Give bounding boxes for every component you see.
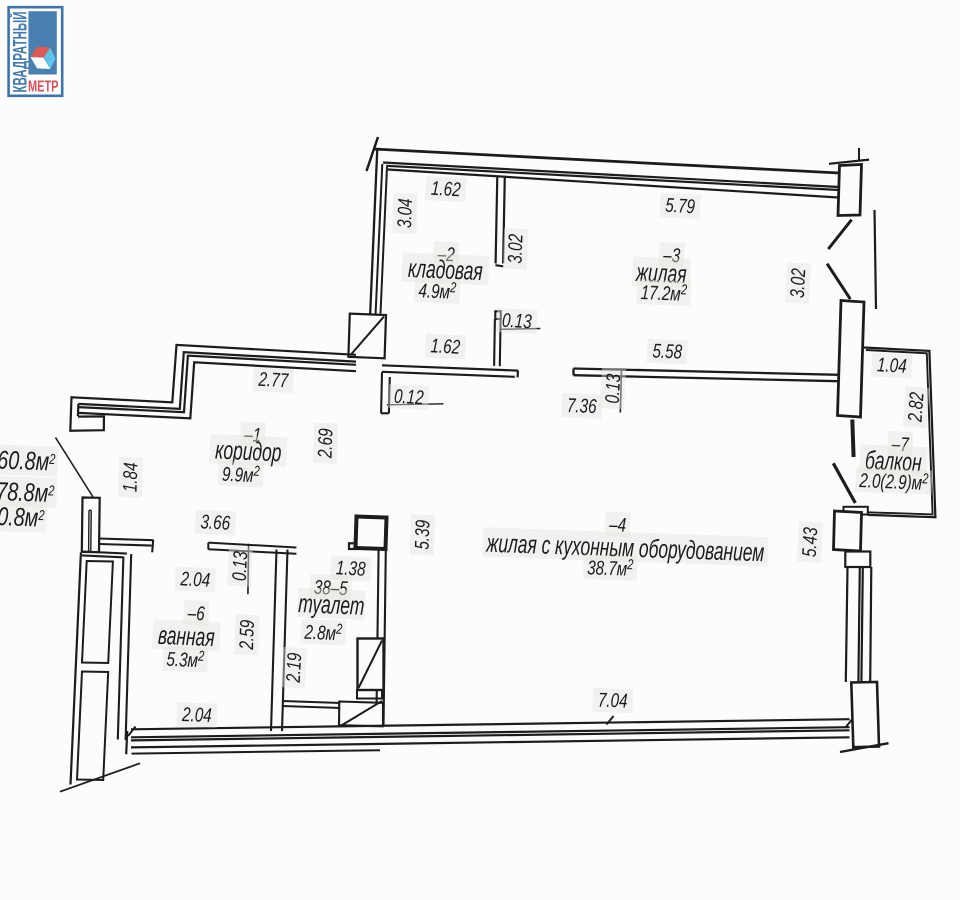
svg-text:2.04: 2.04: [181, 703, 212, 727]
svg-text:17.2м2: 17.2м2: [640, 279, 687, 306]
svg-text:МЕТР: МЕТР: [28, 79, 59, 96]
svg-text:0.13: 0.13: [601, 373, 625, 404]
svg-text:0.13: 0.13: [502, 309, 533, 333]
svg-text:2.69: 2.69: [313, 428, 337, 459]
svg-text:0.13: 0.13: [228, 551, 252, 582]
svg-text:туалет: туалет: [298, 589, 365, 621]
svg-text:1.62: 1.62: [430, 334, 461, 358]
svg-text:7.36: 7.36: [567, 394, 598, 418]
svg-text:3.04: 3.04: [393, 198, 417, 228]
svg-text:2.0(2.9)м2: 2.0(2.9)м2: [858, 467, 929, 495]
svg-text:60.8м2: 60.8м2: [0, 445, 56, 476]
svg-text:3.66: 3.66: [200, 510, 231, 534]
svg-text:3.02: 3.02: [503, 233, 527, 263]
svg-text:5.58: 5.58: [652, 339, 683, 363]
svg-text:3.02: 3.02: [786, 268, 810, 299]
svg-text:2.19: 2.19: [282, 652, 306, 684]
svg-text:2.82: 2.82: [903, 391, 928, 423]
svg-text:0.12: 0.12: [394, 385, 425, 409]
svg-text:1.84: 1.84: [118, 462, 142, 492]
svg-text:5.39: 5.39: [410, 519, 434, 549]
svg-text:5.79: 5.79: [665, 194, 696, 218]
svg-text:2.04: 2.04: [179, 567, 211, 591]
svg-text:1.62: 1.62: [431, 177, 462, 201]
svg-text:5.43: 5.43: [798, 527, 822, 558]
svg-text:38.7м2: 38.7м2: [587, 554, 634, 580]
svg-text:2.59: 2.59: [235, 619, 259, 650]
svg-text:2.77: 2.77: [257, 368, 290, 392]
svg-text:7.04: 7.04: [598, 688, 628, 712]
svg-text:1.04: 1.04: [877, 353, 908, 377]
